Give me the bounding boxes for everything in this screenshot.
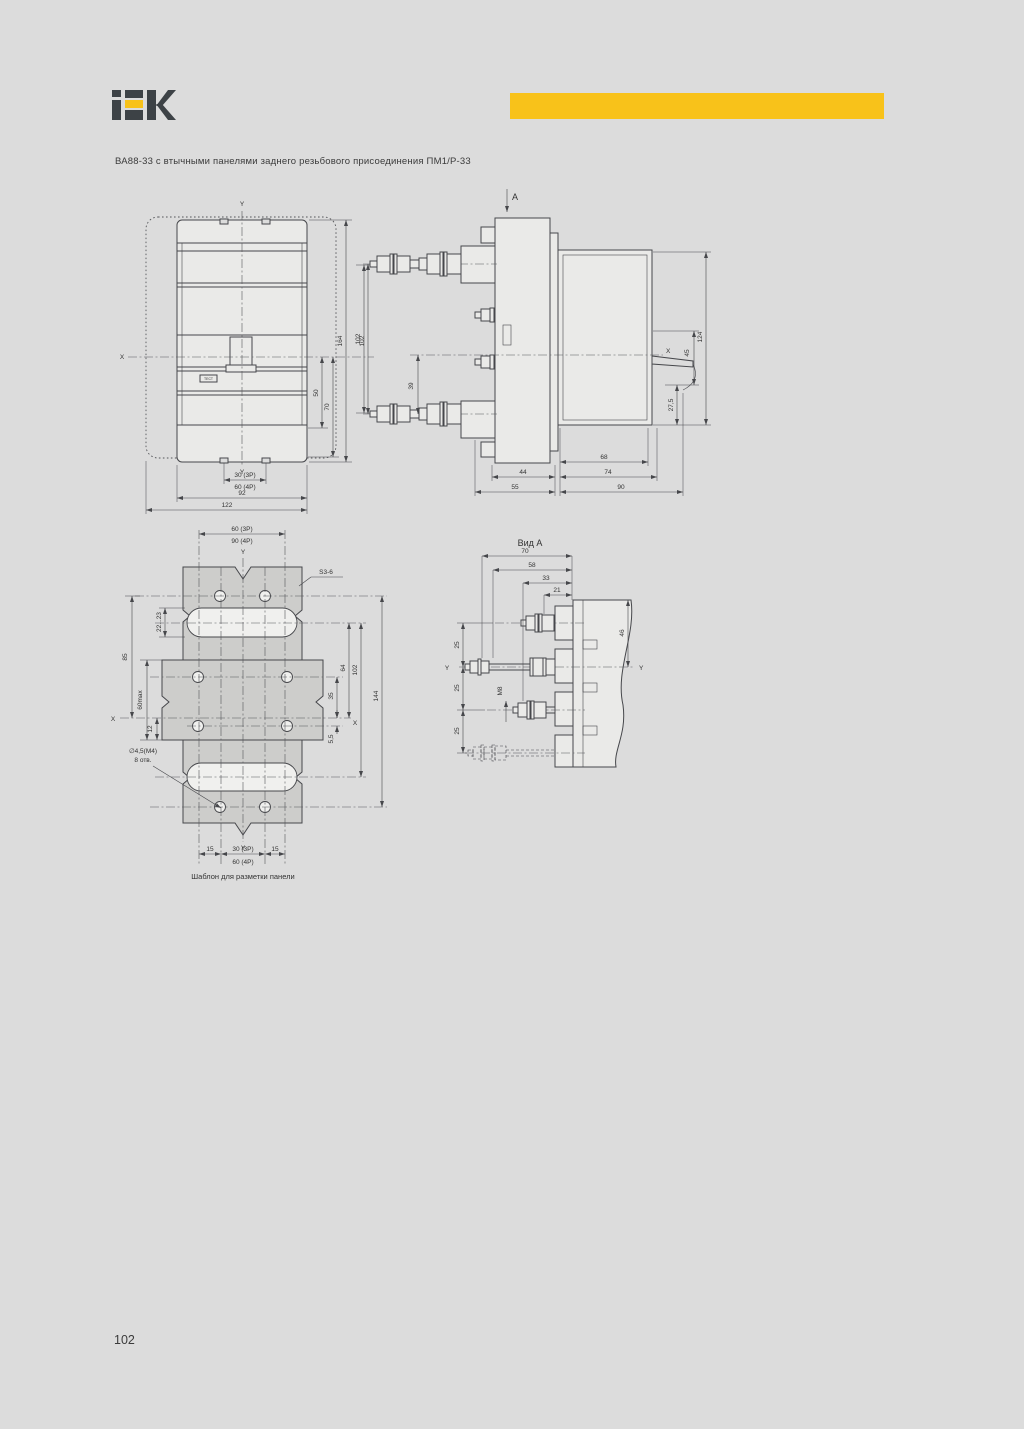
dim-68: 68	[600, 454, 608, 461]
stud-row-3	[513, 701, 555, 719]
axis-label-y-top: Y	[241, 549, 246, 556]
view-a-title: Вид А	[518, 538, 543, 548]
dim-12: 12	[147, 725, 154, 733]
dim-21: 21	[553, 587, 561, 594]
dim-90: 90	[617, 484, 625, 491]
template-panel	[162, 567, 323, 835]
header-accent-bar	[510, 93, 884, 119]
template-caption: Шаблон для разметки панели	[191, 872, 294, 881]
dim-90-4p: 90 (4P)	[231, 538, 252, 545]
dim-55: 55	[511, 484, 519, 491]
dim-164: 164	[337, 335, 344, 346]
dim-39: 39	[408, 382, 415, 390]
thread-label-m8: М8	[497, 686, 504, 695]
dim-60max: 60max	[137, 689, 144, 709]
section-arrow-label: A	[512, 192, 518, 202]
dim-15-right: 15	[271, 846, 279, 853]
dim-144: 144	[373, 690, 380, 701]
dim-45: 45	[684, 349, 691, 357]
dim-102: 102	[359, 335, 366, 346]
dim-27-5: 27,5	[668, 398, 675, 411]
dim-30-3p: 30 (3P)	[232, 846, 253, 853]
dim-102: 102	[352, 664, 359, 675]
catalog-page: ВА88-33 с втычными панелями заднего резь…	[0, 0, 1024, 1429]
dim-70: 70	[521, 548, 529, 555]
dim-124: 124	[697, 331, 704, 342]
logo-letter-e	[125, 90, 143, 120]
page-number: 102	[114, 1333, 135, 1347]
axis-label-x-left: X	[111, 716, 116, 723]
axis-label-y-right: Y	[639, 665, 644, 672]
front-view-structure: ТЕСТ	[146, 217, 336, 463]
panel-template-drawing: Y Y X X 60 (3P) 90 (4P) S3-6 22...23 85 …	[95, 520, 395, 895]
dim-25-3: 25	[454, 727, 461, 735]
dim-5-5: 5,5	[328, 734, 335, 743]
test-button-label: ТЕСТ	[204, 377, 214, 381]
front-view-drawing: ТЕСТ Y Y X 50 70 164 102	[100, 195, 380, 525]
stud-row-1	[521, 614, 554, 632]
side-view-drawing: A	[355, 185, 725, 515]
thickness-label: S3-6	[319, 569, 333, 576]
dim-64: 64	[340, 664, 347, 672]
axis-label-y-top: Y	[240, 201, 245, 208]
axis-label-x-right: X	[353, 720, 358, 727]
holes-note-line2: 8 отв.	[134, 757, 151, 764]
dim-46: 46	[619, 629, 626, 637]
dim-25-1: 25	[454, 641, 461, 649]
dim-15-left: 15	[206, 846, 214, 853]
dim-60-4p: 60 (4P)	[232, 859, 253, 866]
dim-122: 122	[222, 502, 233, 509]
breaker-handle	[226, 337, 256, 372]
section-arrow: A	[507, 189, 518, 212]
dim-50: 50	[313, 389, 320, 397]
dim-30-3p: 30 (3P)	[234, 472, 255, 479]
iek-logo	[112, 86, 176, 126]
dim-70: 70	[324, 403, 331, 411]
test-button: ТЕСТ	[200, 375, 217, 382]
dim-22-23: 22...23	[156, 612, 163, 632]
dim-74: 74	[604, 469, 612, 476]
view-a-drawing: Вид А	[435, 530, 685, 795]
dim-60-3p: 60 (3P)	[231, 526, 252, 533]
top-slot	[187, 608, 297, 637]
holes-note-line1: ∅4,5(М4)	[129, 748, 157, 755]
logo-letter-i	[112, 90, 121, 120]
panel-mid-bolts	[475, 308, 494, 369]
page-title: ВА88-33 с втычными панелями заднего резь…	[115, 156, 471, 167]
dim-25-2: 25	[454, 684, 461, 692]
dim-33: 33	[542, 575, 550, 582]
axis-label-x: X	[120, 354, 125, 361]
dim-35: 35	[328, 692, 335, 700]
dim-85: 85	[122, 653, 129, 661]
dim-92: 92	[238, 490, 246, 497]
side-view-structure: X	[363, 218, 695, 463]
view-a-structure	[459, 600, 635, 767]
logo-letter-k	[147, 90, 176, 120]
dim-44: 44	[519, 469, 527, 476]
axis-label-y-left: Y	[445, 665, 450, 672]
axis-label-x: X	[666, 348, 671, 355]
dim-58: 58	[528, 562, 536, 569]
